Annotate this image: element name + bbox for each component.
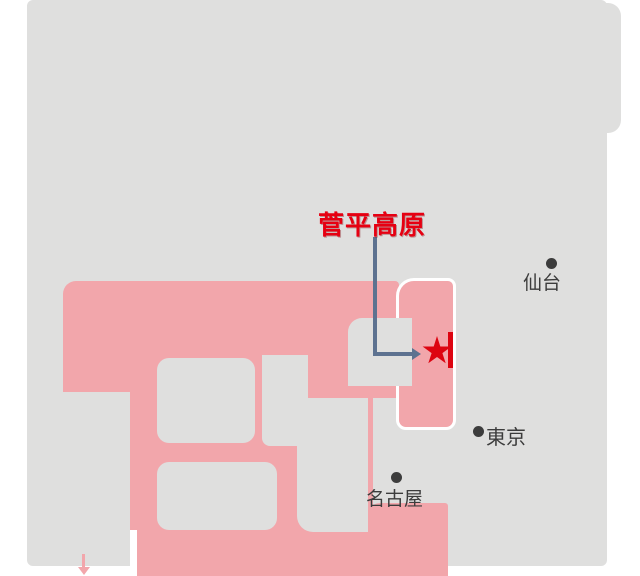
city-dot-tokyo (473, 426, 484, 437)
highlight-region-bottom-band-right (368, 503, 448, 576)
prefecture-hole-3 (157, 462, 277, 530)
prefecture-hole-middle (297, 398, 368, 532)
japan-deformed-map: 菅平高原 仙台 東京 名古屋 (0, 0, 640, 576)
leader-line-horizontal (373, 352, 413, 356)
poi-label-sugadaira[interactable]: 菅平高原 (318, 205, 426, 242)
city-dot-nagoya (391, 472, 402, 483)
city-label-nagoya: 名古屋 (366, 484, 423, 511)
landmass-northeast-bump (588, 3, 621, 133)
bay-inlet (130, 530, 137, 576)
coast-arrow-head-icon (78, 567, 90, 575)
leader-arrowhead-icon (412, 348, 421, 360)
marker-red-bar (448, 332, 453, 368)
prefecture-hole-1 (157, 358, 255, 443)
city-label-tokyo: 東京 (486, 421, 526, 450)
city-label-sendai: 仙台 (523, 268, 561, 295)
leader-line-vertical (373, 237, 377, 354)
